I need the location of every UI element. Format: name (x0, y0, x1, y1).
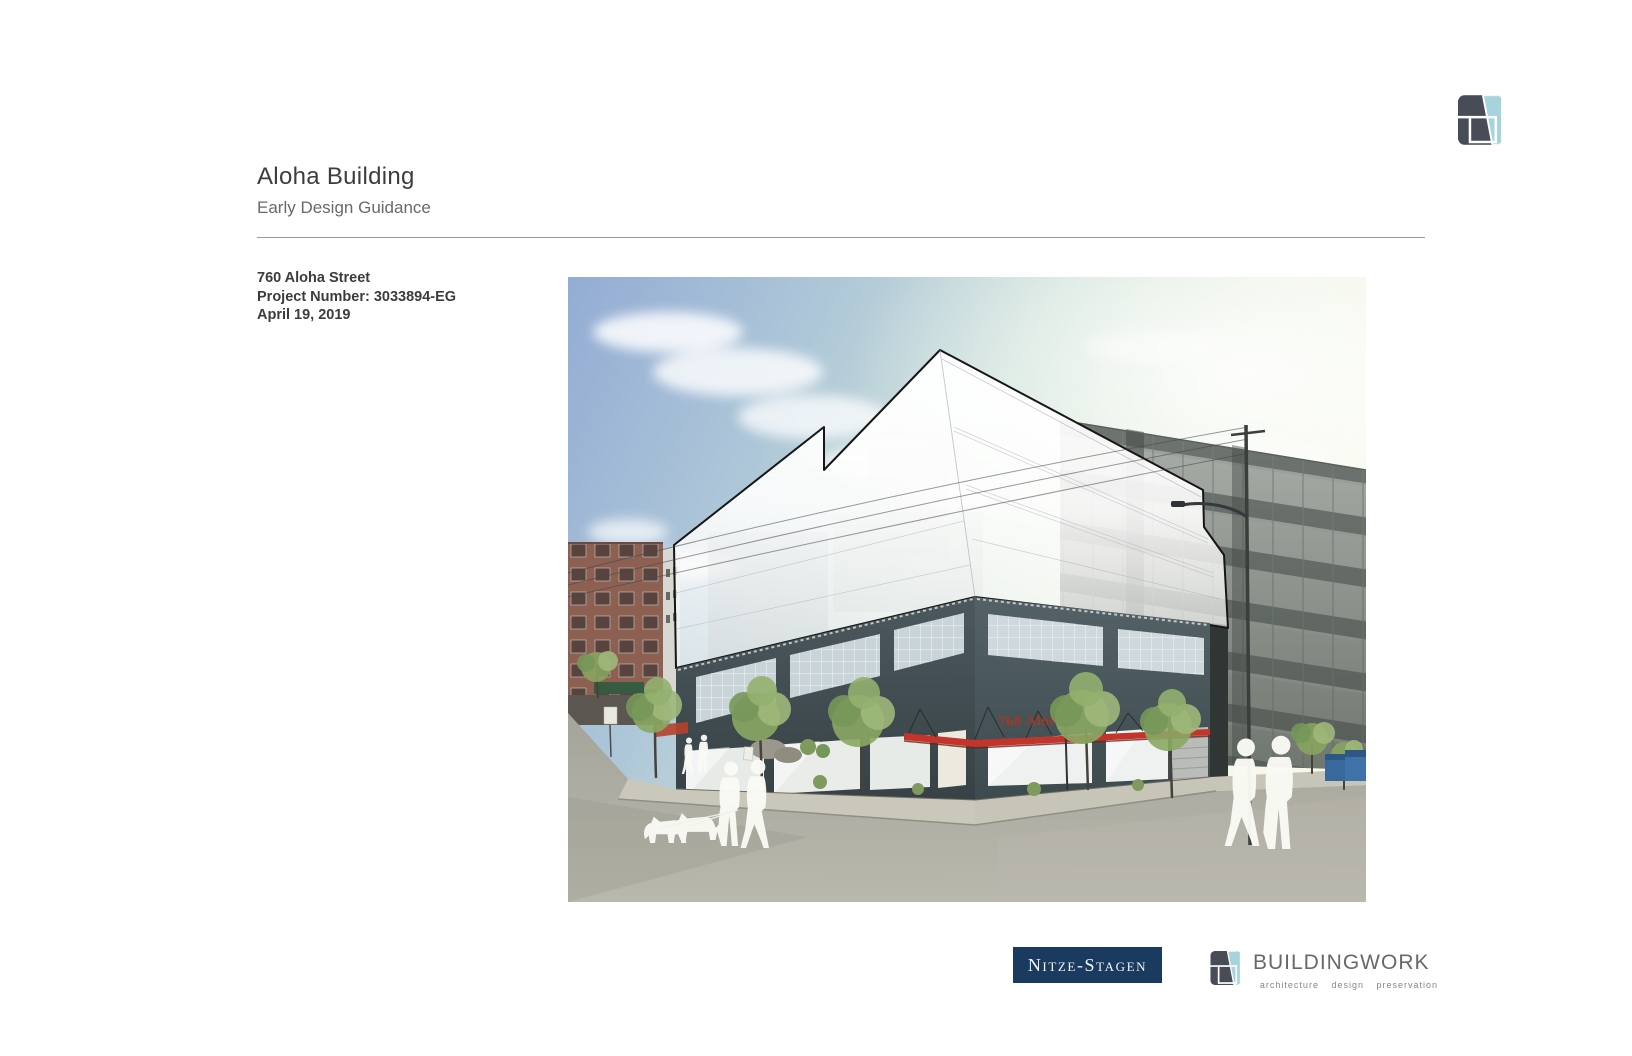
rendering-scene: 760 Aloha (568, 277, 1366, 902)
buildingwork-footer-mark (1210, 951, 1241, 985)
project-number: Project Number: 3033894-EG (257, 288, 456, 307)
nitze-stagen-label: Nitze-Stagen (1028, 955, 1147, 976)
buildingwork-wordmark: BUILDINGWORK (1253, 950, 1443, 976)
buildingwork-tagline: architecture design preservation (1250, 980, 1438, 990)
lamp-head (1171, 501, 1185, 507)
page-title: Aloha Building (257, 163, 431, 191)
document-page: { "page": { "title": "Aloha Building", "… (0, 0, 1632, 1056)
buildingwork-logo-mark (1458, 94, 1502, 146)
architectural-rendering: 760 Aloha (568, 277, 1366, 902)
project-address: 760 Aloha Street (257, 269, 456, 288)
project-info: 760 Aloha Street Project Number: 3033894… (257, 269, 456, 325)
horizontal-rule (257, 237, 1425, 238)
project-date: April 19, 2019 (257, 306, 456, 325)
sandwich-board (744, 747, 754, 760)
nitze-stagen-logo: Nitze-Stagen (1013, 947, 1162, 983)
dumpsters (1325, 750, 1366, 781)
page-subtitle: Early Design Guidance (257, 198, 431, 218)
